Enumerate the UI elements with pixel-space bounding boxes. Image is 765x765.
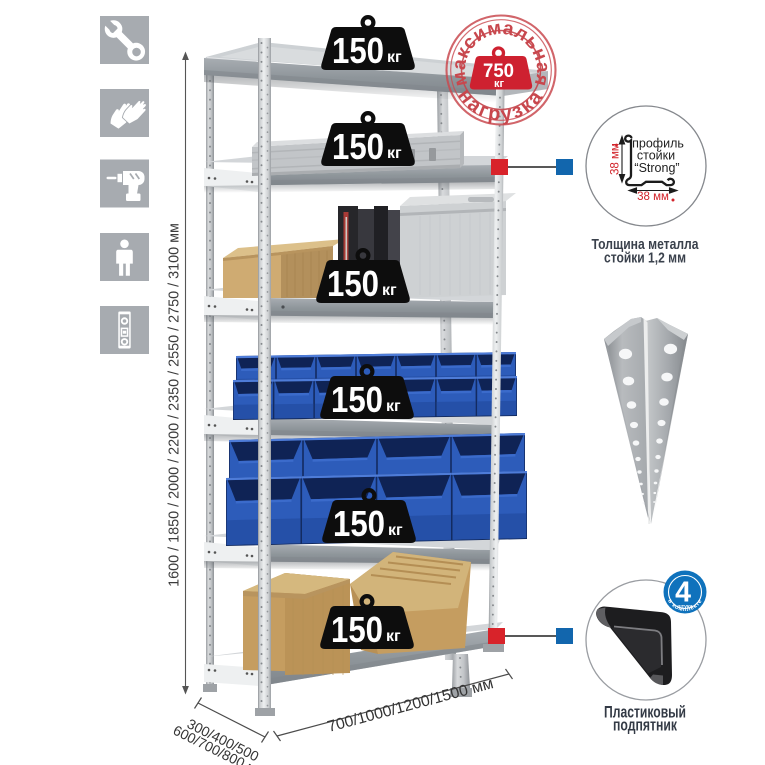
svg-text:1600 / 1850 / 2000 / 2200 / 23: 1600 / 1850 / 2000 / 2200 / 2350 / 2550 …: [167, 223, 183, 587]
svg-text:кг: кг: [386, 628, 401, 645]
svg-text:38 мм: 38 мм: [610, 143, 622, 175]
svg-text:кг: кг: [382, 282, 397, 299]
svg-text:150: 150: [333, 503, 385, 544]
svg-text:150: 150: [331, 609, 383, 650]
svg-text:кг: кг: [387, 49, 402, 66]
svg-text:38 мм: 38 мм: [637, 191, 669, 203]
svg-text:подпятник: подпятник: [613, 717, 678, 735]
svg-text:кг: кг: [494, 78, 505, 90]
svg-text:кг: кг: [388, 522, 403, 539]
svg-text:150: 150: [332, 126, 384, 167]
svg-text:кг: кг: [387, 145, 402, 162]
svg-text:150: 150: [327, 263, 379, 304]
svg-text:150: 150: [332, 30, 384, 71]
svg-text:“Strong”: “Strong”: [634, 161, 679, 175]
svg-text:кг: кг: [386, 398, 401, 415]
svg-text:150: 150: [331, 379, 383, 420]
svg-text:стойки 1,2 мм: стойки 1,2 мм: [604, 250, 686, 267]
